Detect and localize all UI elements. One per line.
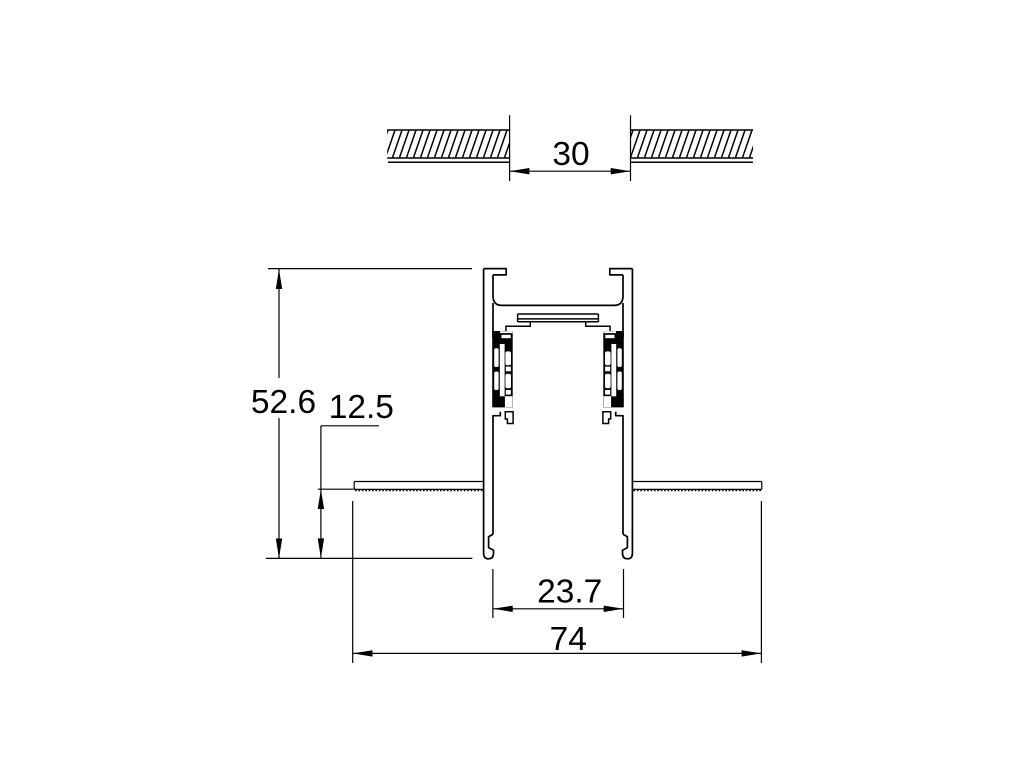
- svg-text:12.5: 12.5: [329, 389, 394, 426]
- svg-text:52.6: 52.6: [251, 384, 316, 421]
- svg-text:30: 30: [552, 136, 589, 173]
- svg-text:74: 74: [550, 621, 587, 658]
- svg-text:23.7: 23.7: [537, 573, 602, 610]
